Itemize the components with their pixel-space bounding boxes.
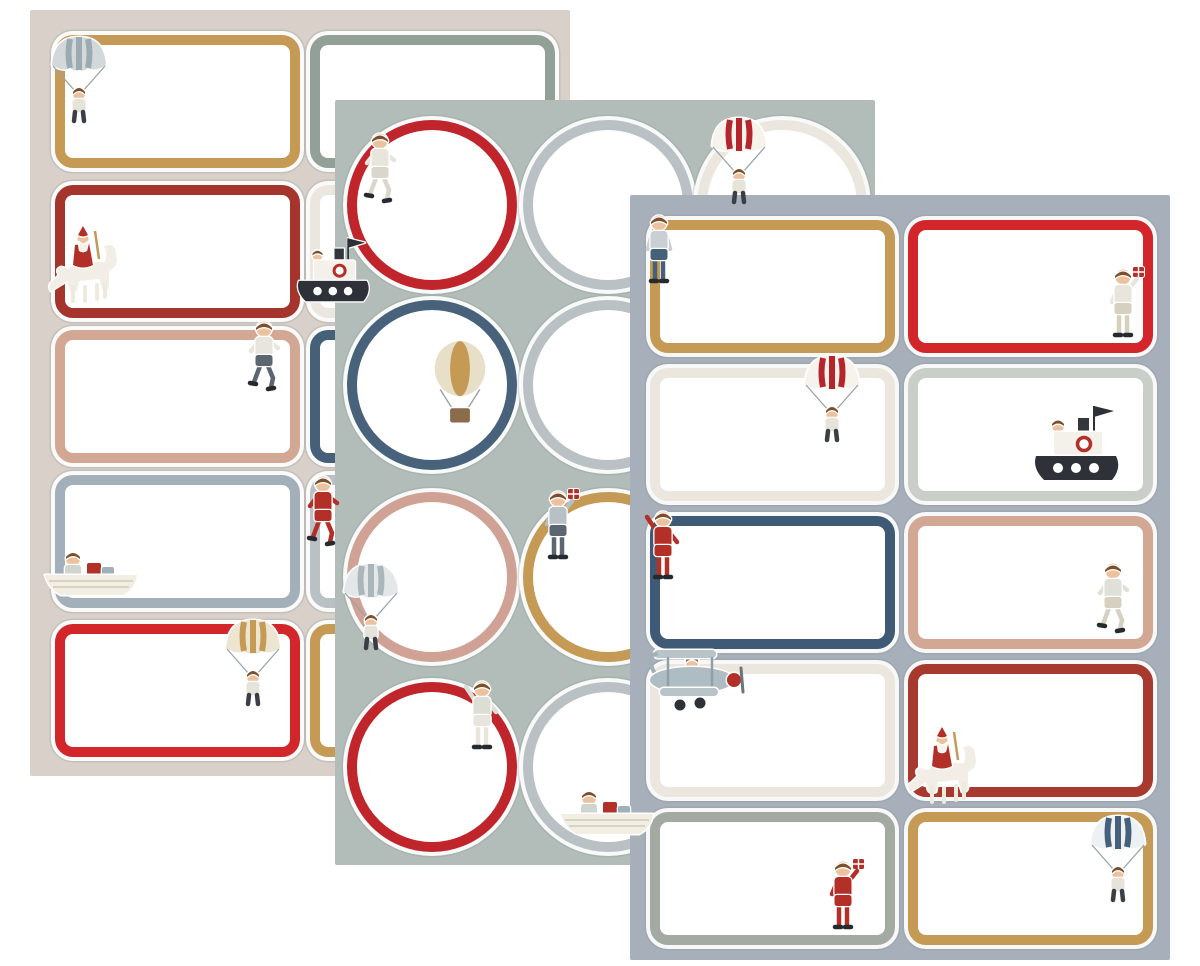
rect-blank-label xyxy=(55,35,300,168)
boy-icon xyxy=(1090,560,1136,634)
boy-icon xyxy=(241,318,287,392)
parachute-icon xyxy=(47,31,111,127)
rect-blank-label xyxy=(650,368,895,501)
rect-blank-label xyxy=(908,516,1153,649)
parachute-icon xyxy=(1086,810,1150,906)
round-blank-label xyxy=(347,300,517,470)
rect-blank-label xyxy=(55,330,300,463)
rect-blank-label xyxy=(650,516,895,649)
round-blank-label xyxy=(347,492,517,662)
boy-icon xyxy=(636,212,682,286)
rect-blank-label xyxy=(650,664,895,797)
parachute-icon xyxy=(800,350,864,446)
balloon-icon xyxy=(427,340,493,432)
parachute-icon xyxy=(221,614,285,710)
santa-icon xyxy=(45,229,133,307)
boy-icon xyxy=(300,473,346,547)
rect-blank-label xyxy=(55,185,300,318)
rect-blank-label xyxy=(908,220,1153,353)
product-photo-sticker-sheets xyxy=(0,0,1200,966)
parachute-icon xyxy=(339,558,403,654)
rect-blank-label xyxy=(908,812,1153,945)
rowboat-icon xyxy=(43,545,139,607)
biplane-icon xyxy=(634,646,754,726)
boy-icon xyxy=(1100,266,1146,340)
boy-icon xyxy=(820,858,866,932)
rect-blank-label xyxy=(908,368,1153,501)
sheets-container xyxy=(0,0,1200,966)
boy-icon xyxy=(357,130,403,204)
rowboat-icon xyxy=(559,784,655,846)
sticker-sheet-right xyxy=(630,195,1170,960)
steamboat-icon xyxy=(1028,402,1124,490)
santa-icon xyxy=(904,730,992,808)
rect-blank-label xyxy=(908,664,1153,797)
boy-icon xyxy=(459,678,505,752)
parachute-icon xyxy=(707,112,771,208)
steamboat-icon xyxy=(292,235,374,310)
round-blank-label xyxy=(347,682,517,852)
rect-blank-label xyxy=(55,475,300,608)
boy-icon xyxy=(535,488,581,562)
rect-blank-label xyxy=(650,812,895,945)
rect-blank-label xyxy=(650,220,895,353)
rect-blank-label xyxy=(55,624,300,757)
boy-icon xyxy=(640,508,686,582)
